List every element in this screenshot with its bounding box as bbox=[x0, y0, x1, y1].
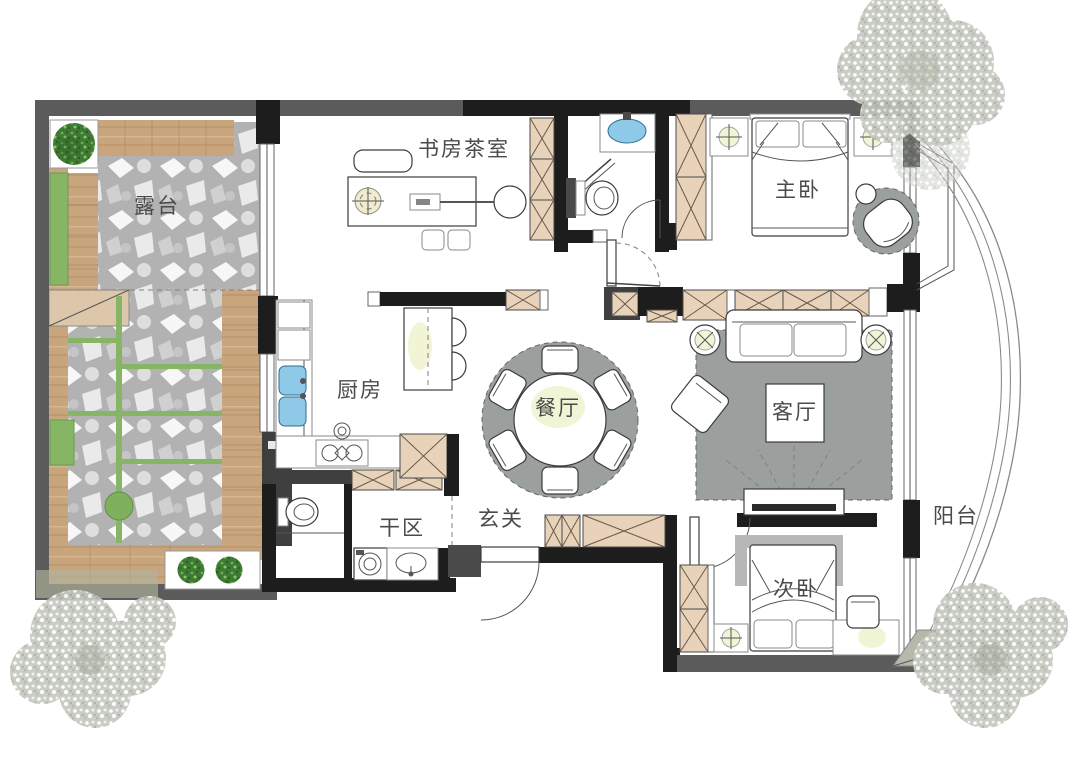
label-second-bedroom: 次卧 bbox=[773, 577, 819, 601]
tree-top-right bbox=[837, 0, 1005, 190]
sofa-cushion bbox=[740, 324, 792, 356]
round-stool bbox=[494, 186, 526, 218]
floor-plan-canvas: 露台 书房茶室 主卧 厨房 餐厅 客厅 玄关 干区 次卧 阳台 bbox=[0, 0, 1080, 759]
toilet bbox=[586, 181, 618, 215]
bar-chair bbox=[452, 352, 466, 380]
toilet-tank bbox=[576, 181, 585, 215]
stove bbox=[316, 440, 368, 466]
bedroom-door-leaf bbox=[690, 517, 699, 569]
pillow bbox=[754, 620, 792, 648]
desk-chair bbox=[847, 596, 879, 628]
wall-cabinet bbox=[354, 150, 412, 172]
label-study-tea: 书房茶室 bbox=[418, 137, 510, 161]
label-terrace: 露台 bbox=[134, 194, 180, 218]
label-entry: 玄关 bbox=[478, 507, 524, 531]
master-door-arc bbox=[616, 243, 660, 287]
sofa-cushion bbox=[794, 324, 846, 356]
toilet bbox=[286, 498, 318, 526]
terrace-stone-garden bbox=[68, 290, 222, 545]
entry-step bbox=[448, 545, 481, 577]
study-chair bbox=[448, 230, 470, 250]
study-chair bbox=[422, 230, 444, 250]
bush-icon bbox=[178, 557, 205, 584]
side-ball bbox=[856, 184, 876, 204]
pillow bbox=[756, 121, 799, 147]
master-door-leaf bbox=[607, 240, 616, 286]
label-dry-area: 干区 bbox=[379, 516, 425, 540]
terrace-wood-left-inner bbox=[68, 173, 98, 290]
pillow bbox=[796, 620, 834, 648]
entry-door-arc bbox=[481, 562, 539, 620]
room-dining bbox=[482, 342, 638, 498]
corridor bbox=[607, 240, 660, 287]
room-terrace bbox=[49, 120, 262, 584]
pillow bbox=[803, 121, 846, 147]
label-balcony: 阳台 bbox=[933, 504, 979, 528]
label-living: 客厅 bbox=[772, 400, 818, 424]
bush-icon bbox=[216, 557, 243, 584]
entry-door-leaf bbox=[481, 547, 539, 562]
label-kitchen: 厨房 bbox=[337, 378, 383, 402]
bath-door-arc bbox=[622, 200, 660, 238]
floor-plan: 露台 书房茶室 主卧 厨房 餐厅 客厅 玄关 干区 次卧 阳台 bbox=[0, 0, 1080, 759]
bar-chair bbox=[452, 318, 466, 346]
faucet-icon bbox=[623, 112, 631, 120]
tree-bottom-right bbox=[913, 583, 1068, 728]
tv bbox=[752, 504, 836, 511]
label-dining: 餐厅 bbox=[535, 396, 581, 420]
terrace-planter-strip bbox=[50, 173, 68, 285]
tv-console bbox=[744, 489, 844, 515]
label-master-bedroom: 主卧 bbox=[775, 178, 821, 202]
bathroom-sink bbox=[608, 119, 646, 143]
terrace-round-planter bbox=[105, 492, 133, 520]
room-master-bathroom bbox=[566, 112, 660, 238]
terrace-planter-square bbox=[50, 420, 74, 465]
kitchen-sink bbox=[279, 397, 306, 426]
bush-planter bbox=[165, 551, 260, 589]
terrace-wood-top bbox=[98, 120, 234, 156]
tree-bottom-left bbox=[10, 570, 176, 728]
